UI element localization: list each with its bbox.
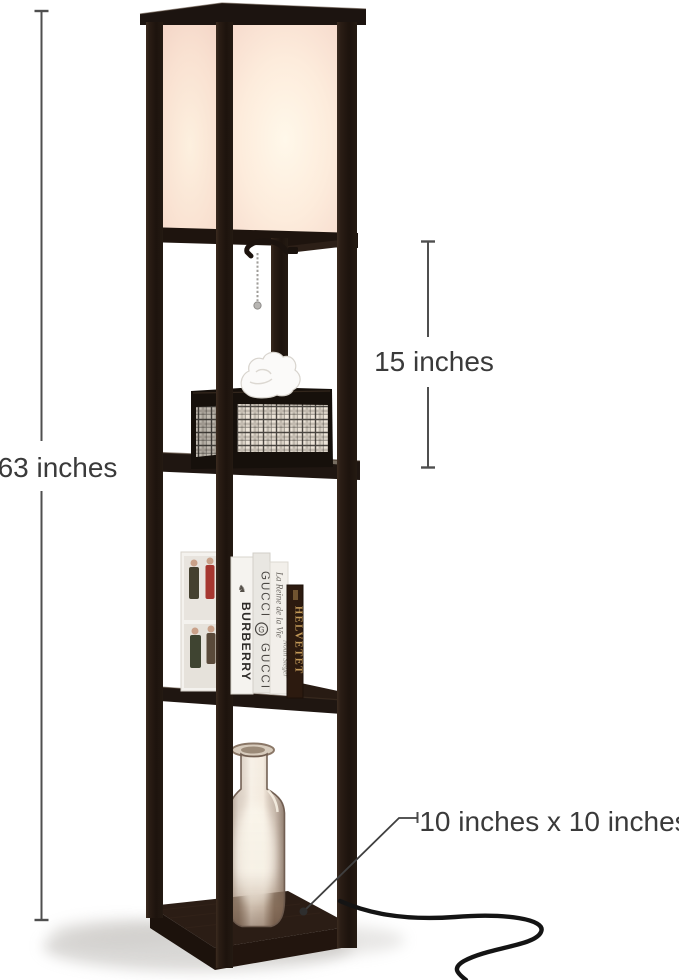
bottle-mouth <box>241 747 265 754</box>
post-front-left <box>216 22 233 968</box>
height-label: 63 inches <box>0 452 117 483</box>
shade-top-cap <box>140 3 366 25</box>
book-burberry: ♞ BURBERRY <box>231 557 253 694</box>
gucci-emblem-letter: G <box>258 626 264 635</box>
book-spine-novel-title: La Reine de la Vie <box>275 571 285 638</box>
post-back-left <box>146 22 163 918</box>
base-leader-dot <box>300 908 308 916</box>
product-image: ♞ BURBERRY GUCCI G GUCCI La Reine de la … <box>0 0 679 980</box>
chain-ball <box>254 302 261 309</box>
books-row: ♞ BURBERRY GUCCI G GUCCI La Reine de la … <box>231 553 304 698</box>
book-helvetet: HELVETET <box>287 585 304 698</box>
book-spine-gucci-bottom: GUCCI <box>259 643 271 690</box>
shade-label: 15 inches <box>374 346 494 377</box>
lamp-scene: ♞ BURBERRY GUCCI G GUCCI La Reine de la … <box>0 0 679 980</box>
tissue-box <box>191 352 333 469</box>
shade-front-panel <box>226 24 344 234</box>
tissue-puff <box>241 352 300 398</box>
annotation-shade-15: 15 inches <box>374 242 494 468</box>
lamp-shade <box>140 3 366 234</box>
base-label: 10 inches x 10 inches <box>419 806 679 837</box>
shade-side-panel <box>156 24 224 234</box>
base-leader-line <box>304 818 418 912</box>
book-spine-burberry: BURBERRY <box>239 602 253 682</box>
annotation-height-63: 63 inches <box>0 11 117 920</box>
glass-bottle <box>229 744 285 927</box>
book-gucci: GUCCI G GUCCI <box>253 553 271 693</box>
bottle-overlay <box>229 754 285 927</box>
burberry-knight-logo: ♞ <box>238 584 247 595</box>
book-spine-gucci-top: GUCCI <box>259 571 271 618</box>
post-front-right <box>337 22 357 948</box>
book-spine-helvetet: HELVETET <box>293 606 304 675</box>
rod-clip <box>288 247 298 254</box>
tissue-box-plaid-front <box>237 404 328 452</box>
helvetet-small-text <box>293 590 298 600</box>
pull-chain <box>254 253 261 309</box>
